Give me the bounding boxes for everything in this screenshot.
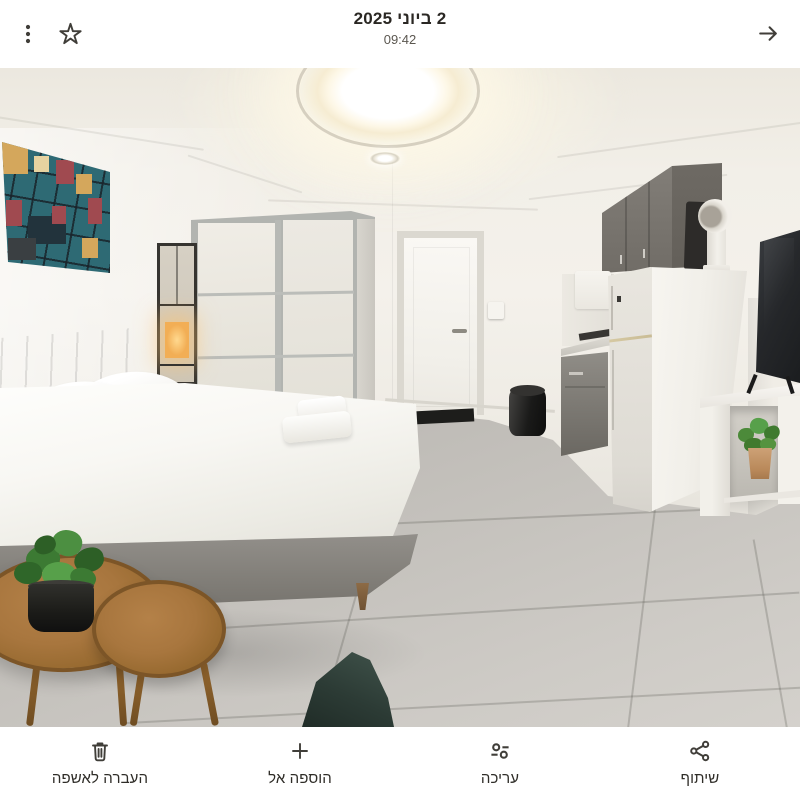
wardrobe-door [283,220,353,423]
wardrobe-side [357,219,375,423]
star-icon [57,21,84,48]
edit-label: עריכה [481,770,519,787]
lamp-frame [160,364,194,366]
kebab-menu-icon [16,22,40,46]
small-appliance [575,271,611,309]
trash-bin [509,388,546,436]
wall-corner [392,160,393,418]
lamp-frame [176,246,178,304]
photo-image[interactable] [0,68,800,727]
back-button[interactable] [748,13,788,53]
vent-opening [698,199,732,233]
interior-door [397,231,484,415]
photo-info: 2 ביוני 2025 09:42 [0,9,800,47]
door-panel-line [413,247,470,407]
trash-bin-rim [510,385,545,396]
tune-sliders-icon [488,739,512,763]
move-to-trash-label: העברה לאשפה [52,770,148,787]
fridge-logo [617,296,621,302]
plant-pot [28,584,94,632]
top-app-bar: 2 ביוני 2025 09:42 [0,0,800,68]
photo-viewer-screen: 2 ביוני 2025 09:42 [0,0,800,800]
tv-screen [764,238,794,368]
cabinet-handle [643,249,645,258]
add-to-label: הוספה אל [268,770,332,787]
photo-time: 09:42 [0,32,800,47]
fridge-handle [611,286,613,330]
drawer-seam [565,386,605,388]
share-button[interactable]: שיתוף [600,727,800,800]
photo-date: 2 ביוני 2025 [0,9,800,29]
drawer-handle [569,372,583,375]
floor-lamp [157,243,197,385]
add-to-button[interactable]: הוספה אל [200,727,400,800]
door-handle [452,329,467,333]
move-to-trash-button[interactable]: העברה לאשפה [0,727,200,800]
bottom-action-bar: העברה לאשפה הוספה אל עריכה [0,727,800,800]
lamp-shade [165,322,189,358]
fridge-handle [612,350,614,430]
lamp-frame [160,304,194,306]
kitchen-lower-cabinet [561,352,608,456]
favorite-button[interactable] [50,14,90,54]
more-options-button[interactable] [8,14,48,54]
vent-stem [707,227,726,267]
tile-seam [753,539,790,727]
recessed-spotlight [370,152,400,165]
share-icon [688,739,712,763]
air-vent [698,199,734,277]
arrow-right-icon [756,21,781,46]
trash-icon [88,739,112,763]
share-label: שיתוף [681,770,720,787]
cabinet-handle [620,255,622,264]
light-switch [488,302,504,319]
plus-icon [288,739,312,763]
ceiling-light [300,68,476,144]
tv [756,230,800,386]
edit-button[interactable]: עריכה [400,727,600,800]
cabinet-seam [648,169,650,269]
